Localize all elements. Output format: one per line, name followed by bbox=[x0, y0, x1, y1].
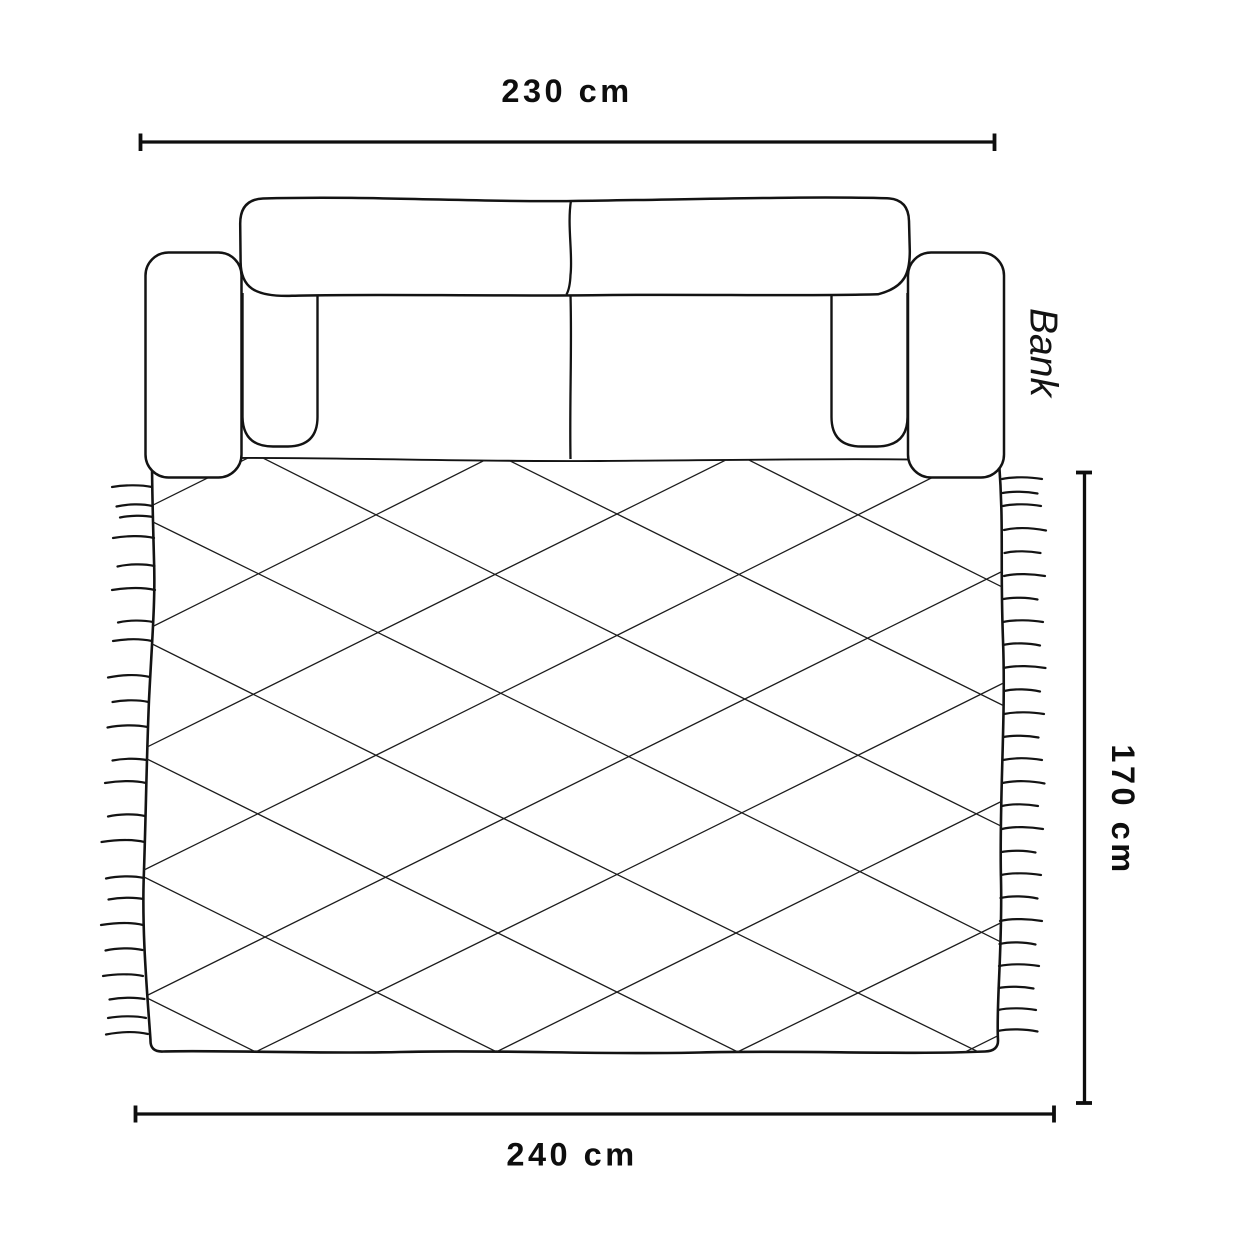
svg-text:Bank: Bank bbox=[1022, 308, 1065, 399]
svg-text:170 cm: 170 cm bbox=[1105, 744, 1141, 875]
svg-text:230 cm: 230 cm bbox=[501, 73, 632, 109]
svg-text:240 cm: 240 cm bbox=[506, 1137, 637, 1173]
